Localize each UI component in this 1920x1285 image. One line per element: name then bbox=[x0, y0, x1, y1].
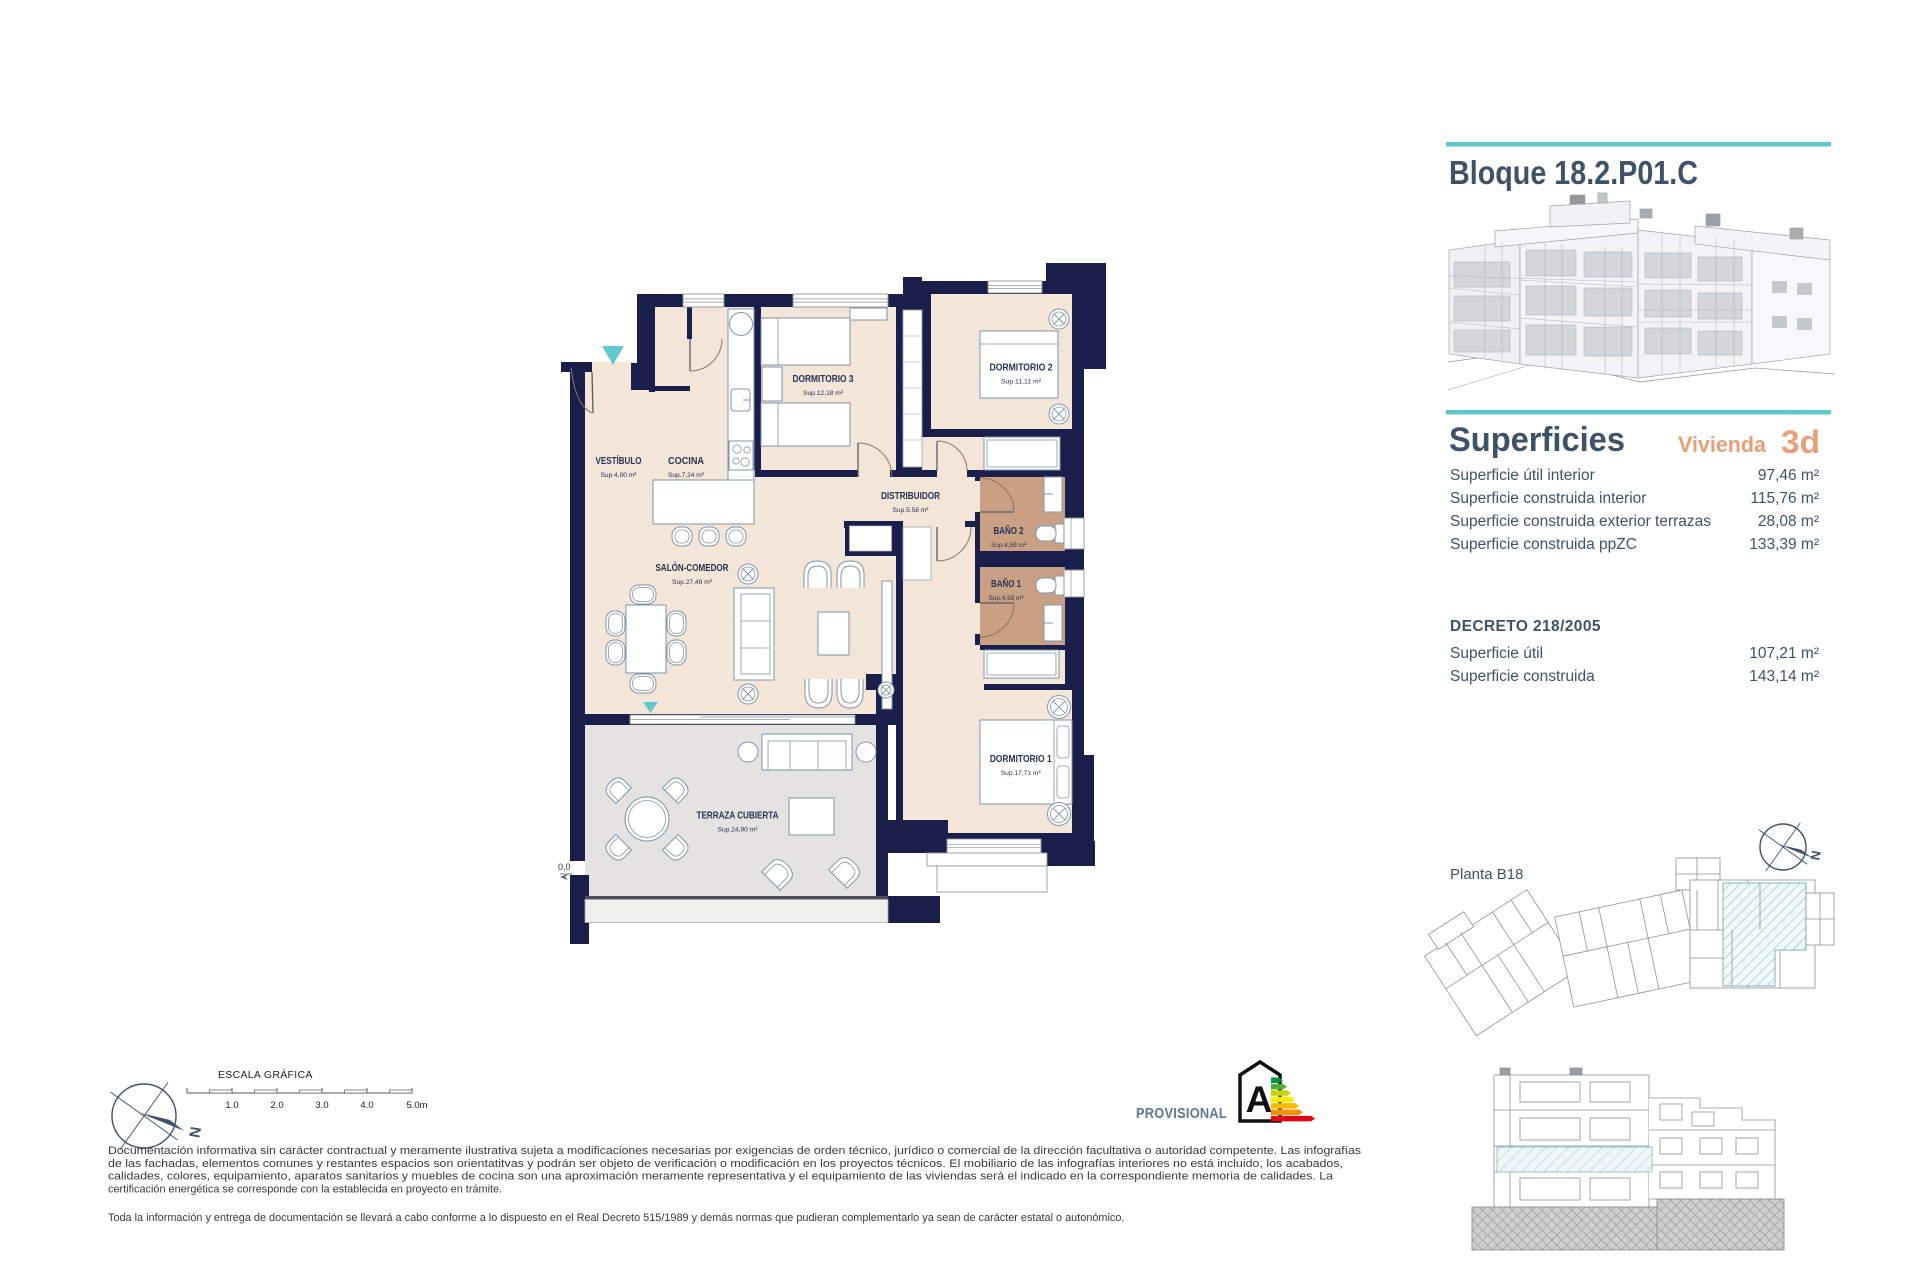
svg-text:N: N bbox=[1807, 849, 1823, 861]
svg-text:N: N bbox=[185, 1125, 204, 1139]
svg-text:5.0m: 5.0m bbox=[406, 1100, 427, 1111]
svg-text:TERRAZA CUBIERTA: TERRAZA CUBIERTA bbox=[697, 810, 780, 821]
svg-text:143,14 m²: 143,14 m² bbox=[1749, 668, 1819, 685]
svg-text:2.0: 2.0 bbox=[270, 1100, 283, 1111]
svg-text:3.0: 3.0 bbox=[315, 1100, 328, 1111]
svg-text:Superficie construida: Superficie construida bbox=[1450, 668, 1595, 685]
svg-text:COCINA: COCINA bbox=[668, 456, 705, 467]
svg-text:Sup.27,49 m²: Sup.27,49 m² bbox=[672, 579, 713, 586]
svg-text:4.0: 4.0 bbox=[360, 1100, 373, 1111]
svg-text:Toda la información y entrega: Toda la información y entrega de documen… bbox=[108, 1212, 1124, 1224]
svg-text:28,08 m²: 28,08 m² bbox=[1758, 513, 1819, 530]
svg-text:Bloque 18.2.P01.C: Bloque 18.2.P01.C bbox=[1449, 154, 1698, 191]
svg-text:A: A bbox=[1246, 1079, 1273, 1120]
svg-text:Sup.7,24 m²: Sup.7,24 m² bbox=[668, 472, 705, 479]
svg-text:PROVISIONAL: PROVISIONAL bbox=[1136, 1106, 1227, 1122]
svg-text:DECRETO 218/2005: DECRETO 218/2005 bbox=[1450, 618, 1601, 635]
svg-text:Superficies: Superficies bbox=[1449, 421, 1625, 459]
svg-text:Sup.11,11 m²: Sup.11,11 m² bbox=[1001, 379, 1042, 386]
svg-text:133,39 m²: 133,39 m² bbox=[1749, 536, 1819, 553]
svg-text:DISTRIBUIDOR: DISTRIBUIDOR bbox=[881, 491, 941, 502]
svg-text:Superficie útil interior: Superficie útil interior bbox=[1450, 467, 1595, 484]
svg-text:BAÑO 2: BAÑO 2 bbox=[994, 524, 1024, 537]
svg-text:Superficie construida exterior: Superficie construida exterior terrazas bbox=[1450, 513, 1711, 530]
svg-text:Sup.12,18 m²: Sup.12,18 m² bbox=[803, 390, 844, 397]
svg-text:Vivienda: Vivienda bbox=[1678, 432, 1767, 457]
svg-text:Planta B18: Planta B18 bbox=[1450, 866, 1523, 883]
svg-text:DORMITORIO 3: DORMITORIO 3 bbox=[793, 374, 854, 385]
svg-text:DORMITORIO 1: DORMITORIO 1 bbox=[990, 754, 1052, 765]
svg-text:Superficie construida ppZC: Superficie construida ppZC bbox=[1450, 536, 1637, 553]
svg-text:Sup.24,90 m²: Sup.24,90 m² bbox=[718, 826, 759, 833]
svg-text:Superficie construida interior: Superficie construida interior bbox=[1450, 490, 1646, 507]
svg-text:97,46 m²: 97,46 m² bbox=[1758, 467, 1819, 484]
svg-text:115,76 m²: 115,76 m² bbox=[1750, 490, 1819, 507]
svg-text:Sup.5,58 m²: Sup.5,58 m² bbox=[893, 507, 930, 514]
svg-text:Sup.4,59 m²: Sup.4,59 m² bbox=[989, 595, 1025, 602]
svg-text:0,0: 0,0 bbox=[558, 862, 571, 872]
svg-text:BAÑO 1: BAÑO 1 bbox=[991, 577, 1021, 590]
svg-text:1.0: 1.0 bbox=[225, 1100, 238, 1111]
svg-text:Superficie útil: Superficie útil bbox=[1450, 645, 1543, 662]
svg-text:Sup.4,59 m²: Sup.4,59 m² bbox=[991, 542, 1027, 549]
svg-text:ESCALA GRÁFICA: ESCALA GRÁFICA bbox=[218, 1068, 313, 1081]
svg-text:Sup.17,71 m²: Sup.17,71 m² bbox=[1001, 770, 1042, 777]
svg-text:107,21 m²: 107,21 m² bbox=[1749, 645, 1819, 662]
svg-text:Sup.4,00 m²: Sup.4,00 m² bbox=[601, 472, 638, 479]
svg-text:3d: 3d bbox=[1781, 424, 1820, 460]
svg-text:DORMITORIO 2: DORMITORIO 2 bbox=[990, 363, 1053, 374]
svg-text:Documentación informativa sin: Documentación informativa sin carácter c… bbox=[108, 1145, 1362, 1195]
svg-text:VESTÍBULO: VESTÍBULO bbox=[596, 454, 642, 467]
svg-text:SALÓN-COMEDOR: SALÓN-COMEDOR bbox=[656, 561, 730, 574]
